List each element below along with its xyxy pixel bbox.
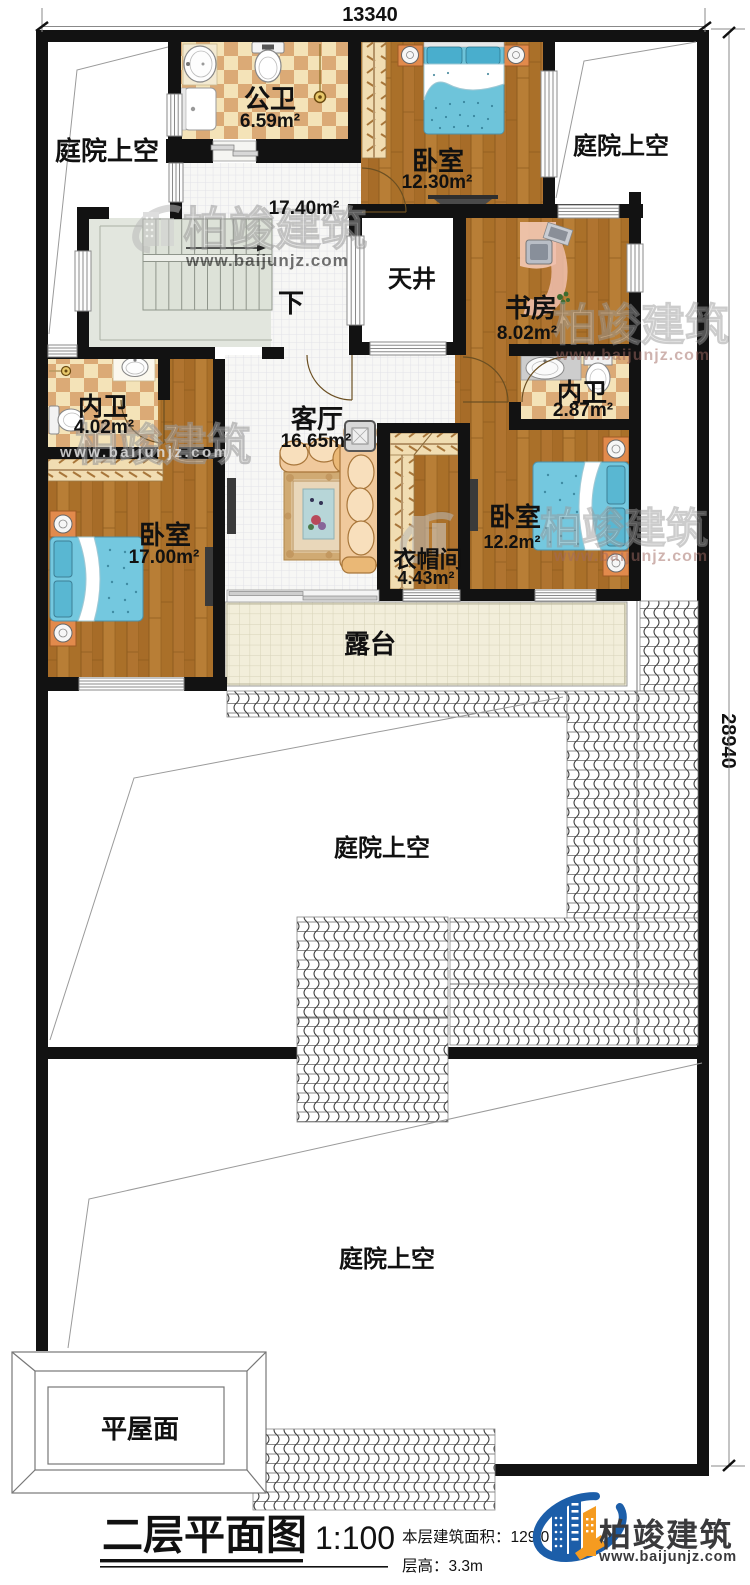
svg-text:书房: 书房 (505, 293, 557, 323)
svg-text:庭院上空: 庭院上空 (334, 834, 430, 862)
svg-text:柏竣建筑: 柏竣建筑 (599, 1517, 733, 1553)
svg-text:柏竣建筑: 柏竣建筑 (553, 301, 729, 350)
svg-text:庭院上空: 庭院上空 (55, 136, 159, 166)
svg-text:13340: 13340 (342, 4, 398, 26)
svg-text:www.baijunjz.com: www.baijunjz.com (59, 444, 229, 461)
svg-text:4.43m²: 4.43m² (397, 568, 454, 588)
svg-text:16.65m²: 16.65m² (281, 431, 352, 452)
svg-text:www.baijunjz.com: www.baijunjz.com (598, 1549, 737, 1565)
svg-text:8.02m²: 8.02m² (497, 323, 557, 344)
svg-text:本层建筑面积：129.0: 本层建筑面积：129.0 (402, 1528, 550, 1546)
svg-text:庭院上空: 庭院上空 (339, 1245, 435, 1273)
svg-text:柏竣建筑: 柏竣建筑 (540, 505, 708, 552)
svg-text:卧室: 卧室 (139, 520, 191, 550)
svg-text:17.00m²: 17.00m² (129, 547, 200, 568)
svg-text:6.59m²: 6.59m² (240, 111, 300, 132)
svg-text:www.baijunjz.com: www.baijunjz.com (555, 347, 710, 364)
svg-text:层高：3.3m: 层高：3.3m (402, 1557, 483, 1575)
svg-text:www.baijunjz.com: www.baijunjz.com (185, 251, 349, 270)
svg-text:平屋面: 平屋面 (101, 1414, 179, 1444)
svg-text:卧室: 卧室 (489, 502, 541, 532)
svg-text:庭院上空: 庭院上空 (573, 132, 669, 160)
svg-text:1:100: 1:100 (315, 1520, 395, 1556)
svg-text:4.02m²: 4.02m² (74, 417, 134, 438)
svg-text:二层平面图: 二层平面图 (102, 1512, 307, 1558)
svg-text:www.baijunjz.com: www.baijunjz.com (553, 548, 708, 565)
svg-text:天井: 天井 (388, 266, 436, 293)
svg-text:12.30m²: 12.30m² (402, 172, 473, 193)
svg-text:17.40m²: 17.40m² (269, 198, 340, 219)
svg-text:12.2m²: 12.2m² (483, 532, 540, 552)
svg-text:公卫: 公卫 (244, 84, 296, 114)
svg-text:2.87m²: 2.87m² (553, 400, 613, 421)
svg-text:露台: 露台 (344, 629, 396, 659)
svg-text:28940: 28940 (717, 713, 739, 769)
svg-text:客厅: 客厅 (291, 404, 343, 434)
svg-text:下: 下 (278, 288, 304, 318)
